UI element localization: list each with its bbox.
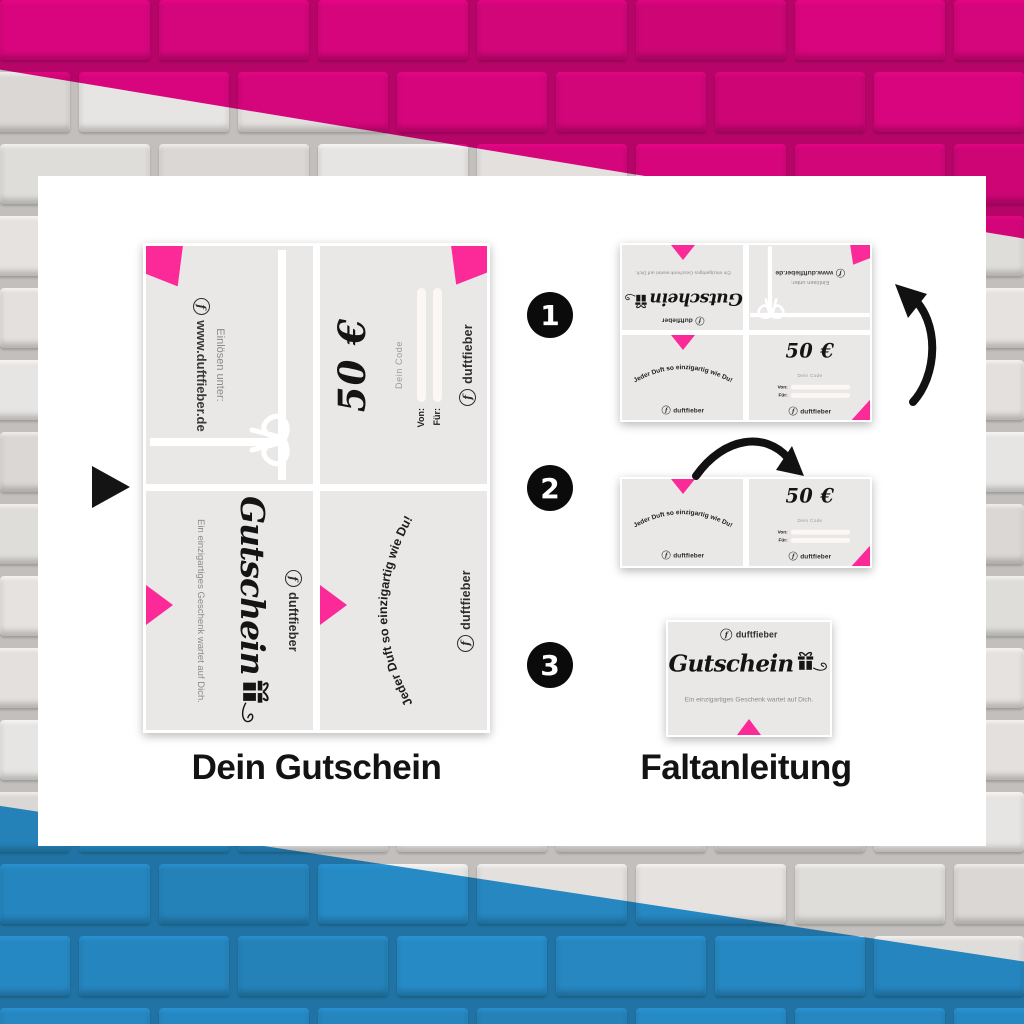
from-row: Von:	[416, 250, 428, 480]
from-line	[417, 288, 426, 402]
duftfieber-logo-icon: f	[661, 405, 670, 414]
for-line	[790, 393, 849, 398]
from-line	[790, 529, 849, 534]
brand-logo: f duftfieber	[285, 496, 302, 726]
for-row: Für:	[432, 250, 444, 480]
redeem-url: www.duftfieber.de	[194, 320, 209, 431]
from-label: Von:	[773, 529, 788, 534]
code-label: Dein Code	[750, 372, 870, 377]
fold-marker-triangle	[146, 585, 173, 625]
caption-voucher: Dein Gutschein	[143, 748, 490, 788]
redeem-line1: Einlösen unter:	[214, 250, 226, 480]
voucher-amount: 50 €	[330, 250, 374, 480]
promo-card: Einlösen unter: f www.duftfieber.de 50 €…	[38, 176, 986, 846]
panel-redeem: Einlösen unter: f www.duftfieber.de	[146, 246, 313, 484]
voucher-slogan: Jeder Duft so einzigartig wie Du!	[632, 509, 733, 529]
for-label: Für:	[773, 392, 788, 397]
duftfieber-logo-icon: f	[285, 570, 302, 587]
amount-panel-content: 50 € Dein Code Von: Für: f duftfieber	[750, 481, 870, 564]
step2-panel-slogan: Jeder Duft so einzigartig wie Du! f duft…	[622, 479, 743, 566]
voucher-amount: 50 €	[750, 339, 870, 362]
amount-panel-content: 50 € Dein Code Von: Für: f duftfieber	[324, 250, 484, 480]
ribbon-bow-icon	[752, 297, 789, 321]
title-panel-content: f duftfieber Gutschein Ein einzigartiges…	[150, 496, 310, 726]
svg-text:Jeder Duft so einzigartig wie: Jeder Duft so einzigartig wie Du!	[632, 509, 733, 529]
step1-panel-redeem: Einlösen unter: f www.duftfieber.de	[749, 245, 870, 330]
gift-icon	[623, 290, 648, 311]
redeem-line1: Einlösen unter:	[750, 279, 870, 285]
step1-panel-title: f duftfieber Gutschein Ein einzigartiges…	[622, 245, 743, 330]
voucher-title: Gutschein	[649, 289, 742, 309]
voucher-subtitle: Ein einzigartiges Geschenk wartet auf Di…	[195, 496, 206, 726]
brand-logo: f duftfieber	[457, 496, 474, 726]
step-badge-2: 2	[527, 465, 573, 511]
from-line	[790, 384, 849, 389]
caption-folding: Faltanleitung	[620, 748, 872, 788]
brand-logo: f duftfieber	[459, 250, 476, 480]
fold-marker-triangle	[320, 585, 347, 625]
for-line	[790, 538, 849, 543]
duftfieber-logo-icon: f	[661, 550, 670, 559]
voucher-title: Gutschein	[669, 649, 794, 676]
title-panel-content: f duftfieber Gutschein Ein einzigartiges…	[669, 623, 830, 735]
for-line	[433, 288, 442, 402]
duftfieber-logo-icon: f	[788, 551, 797, 560]
brand-name: duftfieber	[800, 552, 831, 559]
fold-arrow-up-icon	[883, 276, 943, 406]
slogan-arc: Jeder Duft so einzigartig wie Du!	[334, 501, 430, 721]
duftfieber-logo-icon: f	[459, 389, 476, 406]
duftfieber-logo-icon: f	[835, 268, 844, 277]
step1-panel-amount: 50 € Dein Code Von: Für: f duftfieber	[749, 335, 870, 420]
for-label: Für:	[432, 408, 442, 436]
voucher-slogan: Jeder Duft so einzigartig wie Du!	[375, 513, 414, 708]
for-label: Für:	[773, 537, 788, 542]
slogan-panel-content: Jeder Duft so einzigartig wie Du! f duft…	[324, 496, 484, 726]
redeem-line2: f www.duftfieber.de	[193, 250, 210, 480]
voucher-subtitle: Ein einzigartiges Geschenk wartet auf Di…	[669, 695, 830, 703]
brick	[795, 864, 945, 924]
amount-panel-content: 50 € Dein Code Von: Für: f duftfieber	[750, 336, 870, 419]
panel-slogan: Jeder Duft so einzigartig wie Du! f duft…	[320, 491, 487, 730]
duftfieber-logo-icon: f	[457, 634, 474, 651]
voucher-subtitle: Ein einzigartiges Geschenk wartet auf Di…	[623, 269, 743, 275]
redeem-url: www.duftfieber.de	[775, 269, 833, 277]
step2-panel-amount: 50 € Dein Code Von: Für: f duftfieber	[749, 479, 870, 566]
brick	[954, 864, 1024, 924]
gift-icon	[796, 647, 829, 675]
voucher-title: Gutschein	[233, 496, 272, 675]
duftfieber-logo-icon: f	[720, 628, 732, 640]
step2-folded-strip: Jeder Duft so einzigartig wie Du! f duft…	[620, 477, 872, 568]
duftfieber-logo-icon: f	[193, 298, 210, 315]
brand-name: duftfieber	[458, 570, 472, 630]
brand-name: duftfieber	[661, 317, 692, 324]
fold-arrow-right-icon	[686, 426, 806, 484]
step-badge-1: 1	[527, 292, 573, 338]
panel-amount: 50 € Dein Code Von: Für: f duftfieber	[320, 246, 487, 484]
code-label: Dein Code	[394, 250, 404, 480]
redeem-panel-content: Einlösen unter: f www.duftfieber.de	[750, 246, 870, 329]
brick	[0, 72, 70, 132]
fold-line-pointer-icon	[92, 466, 130, 508]
brand-name: duftfieber	[800, 407, 831, 414]
svg-text:Jeder Duft so einzigartig wie: Jeder Duft so einzigartig wie Du!	[632, 364, 733, 384]
duftfieber-logo-icon: f	[695, 316, 704, 325]
brand-name: duftfieber	[673, 551, 704, 558]
fold-marker-triangle	[737, 719, 761, 735]
brand-name: duftfieber	[673, 406, 704, 413]
brand-name: duftfieber	[736, 629, 778, 639]
step3-panel-title: f duftfieber Gutschein Ein einzigartiges…	[668, 622, 830, 735]
code-label: Dein Code	[750, 517, 870, 522]
brand-name: duftfieber	[460, 324, 474, 384]
voucher-sheet: Einlösen unter: f www.duftfieber.de 50 €…	[143, 243, 490, 733]
voucher-amount: 50 €	[750, 484, 870, 507]
voucher-title-line: Gutschein	[233, 496, 272, 726]
fold-marker-triangle	[671, 245, 695, 260]
redeem-text: Einlösen unter: f www.duftfieber.de	[193, 250, 226, 480]
svg-text:Jeder Duft so einzigartig wie: Jeder Duft so einzigartig wie Du!	[375, 513, 414, 708]
duftfieber-logo-icon: f	[788, 406, 797, 415]
step3-folded-card: f duftfieber Gutschein Ein einzigartiges…	[666, 620, 832, 737]
ribbon-bow-icon	[248, 404, 294, 476]
voucher-slogan: Jeder Duft so einzigartig wie Du!	[632, 364, 733, 384]
step1-panel-slogan: Jeder Duft so einzigartig wie Du! f duft…	[622, 335, 743, 420]
brand-name: duftfieber	[286, 592, 300, 652]
from-label: Von:	[416, 408, 426, 436]
gift-icon	[235, 678, 275, 725]
panel-title: f duftfieber Gutschein Ein einzigartiges…	[146, 491, 313, 730]
step-badge-3: 3	[527, 642, 573, 688]
fold-marker-triangle	[671, 335, 695, 350]
step1-unfolded-voucher: f duftfieber Gutschein Ein einzigartiges…	[620, 243, 872, 422]
from-label: Von:	[773, 384, 788, 389]
